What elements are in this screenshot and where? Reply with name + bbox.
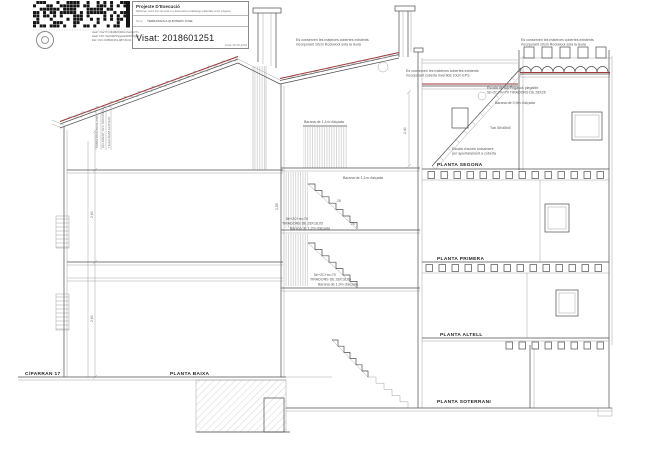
project-description: Reforma i canvi d'ús de local en planta …	[133, 9, 248, 16]
dim-25: 25	[351, 222, 355, 226]
note-roof-center-2: incorporant coberta invertida 10cm EPS	[406, 74, 470, 78]
qr-code	[33, 1, 130, 30]
dim-260b: 2,60	[90, 315, 94, 322]
note-pegasus-barana: Barana de 0,9m d'alçada	[495, 101, 535, 105]
floor-label-altell: PLANTA ALTELL	[440, 332, 483, 338]
note-stair-mid-3: Barana de 1,2m d'alçada	[290, 227, 330, 231]
note-canal: CANAL OCULTA DE ZINC	[95, 115, 99, 148]
visat-stamp: Projecte D'Execució Reforma i canvi d'ús…	[132, 1, 249, 49]
project-title: Projecte D'Execució	[133, 2, 248, 9]
dim-260a: 2,60	[90, 211, 94, 218]
note-barana-escala: Barana de 1,1m d'alçada	[343, 176, 383, 180]
left-building	[52, 8, 283, 377]
labels: PLANTA SEGONA PLANTA PRIMERA PLANTA ALTE…	[25, 38, 594, 405]
dim-28: 28	[337, 199, 341, 203]
section-drawing: PLANTA SEGONA PLANTA PRIMERA PLANTA ALTE…	[0, 0, 650, 450]
visat-number: Visat: 2018601251	[136, 33, 214, 43]
note-stair-mid: 5è+2C+m=70	[286, 217, 308, 221]
floor-label-primera: PLANTA PRIMERA	[437, 256, 484, 262]
college-seal-icon	[36, 31, 54, 49]
name-label: Nom:	[136, 19, 143, 23]
note-roof-right-2: incorporant 10cm Rockwool sota la teula	[521, 43, 586, 47]
floor-label-soterrani: PLANTA SOTERRANI	[437, 399, 491, 405]
floor-label-segona: PLANTA SEGONA	[437, 162, 483, 168]
note-roof-right: Es conserven les mateixes cobertes exist…	[521, 38, 594, 42]
note-stair-low: 5è+2C+m=70	[314, 273, 336, 277]
note-roof-center: Es conserven les mateixes cobertes exist…	[406, 69, 479, 73]
street-label: C/PARRAN 17	[25, 371, 60, 377]
dim-285: 2,85	[275, 203, 279, 210]
drawing-sheet: PLANTA SEGONA PLANTA PRIMERA PLANTA ALTE…	[0, 0, 650, 450]
note-barana-terrassa: Barana de 1,1m d'alçada	[304, 120, 344, 124]
note-tub: Tub 50x80x5	[490, 126, 511, 130]
note-roof-left: Es conserven les mateixes cobertes exist…	[296, 38, 369, 42]
note-stair-low-2: TIRADORS DE 28X18,05	[310, 278, 351, 282]
note-aillament: AÏLLAMENT 10cm ROCKWOOL	[101, 107, 105, 148]
note-acces: Escala d'accés únicament	[452, 147, 493, 151]
note-acces-2: per apuntalament a coberta	[452, 152, 496, 156]
hash-block: Hash: h4wYTmSFpBZQbWmUwo9gV7n Hash CSV: …	[92, 31, 140, 43]
dim-240: 2,40	[403, 127, 407, 134]
note-teula: TEULA ÀRAB EXISTENT	[107, 116, 111, 148]
note-stair-mid-2: TIRADORS DE 28X18,05	[282, 222, 323, 226]
note-stair-low-3: Barana de 1,0m d'alçada	[318, 283, 358, 287]
floor-label-baixa: PLANTA BAIXA	[170, 371, 210, 377]
hash-line: Ref: CSV 2018601251-ABT-59-61	[92, 39, 140, 43]
note-pegasus-2: 5è+2C+m=70 TIRADORS DE 28X26	[487, 91, 546, 95]
name-value: TERRASSOLA QUINTERO JOSE	[147, 19, 192, 23]
visat-date: Data: 08-05-2018	[225, 43, 247, 47]
note-pegasus: Escala de tub Pegasus plegable	[487, 86, 538, 90]
note-roof-left-2: incorporant 10cm Rockwool sota la teula	[296, 43, 361, 47]
architect-name-row: Nom:TERRASSOLA QUINTERO JOSE	[133, 16, 248, 27]
